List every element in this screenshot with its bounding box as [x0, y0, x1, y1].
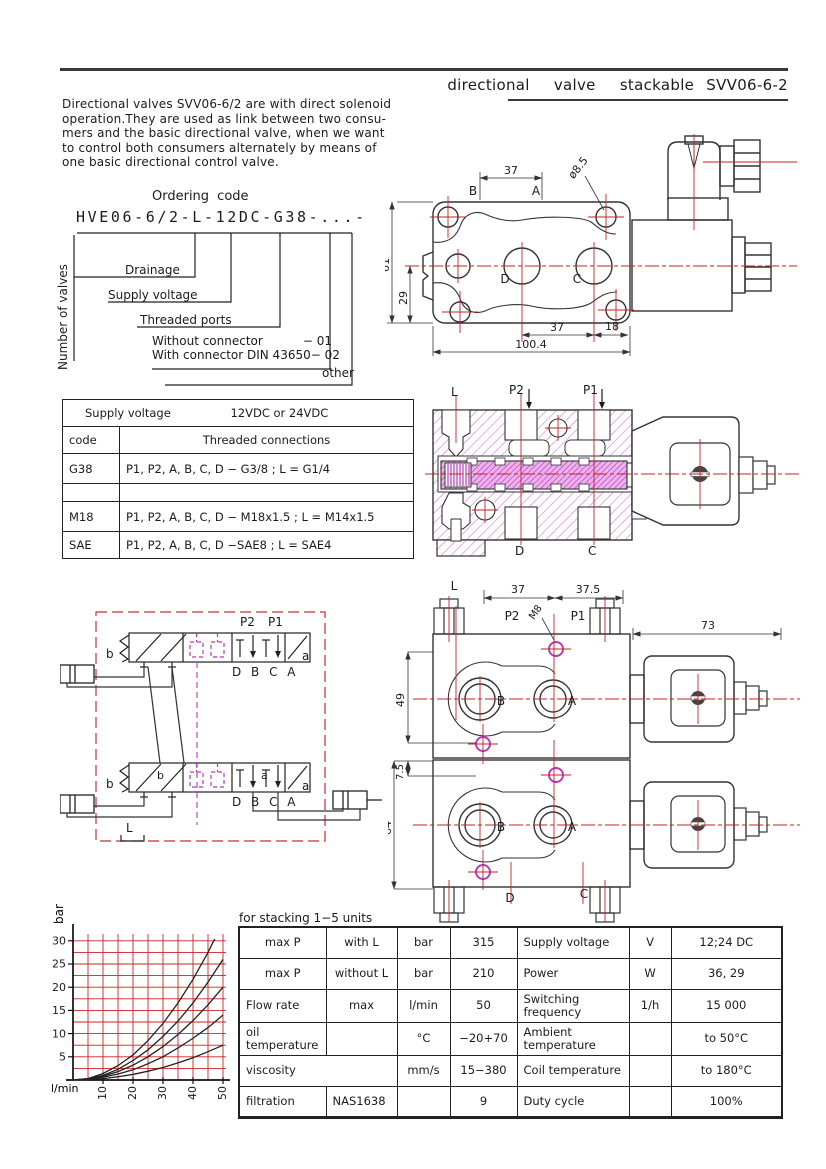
other-label: other — [322, 366, 354, 380]
spec-cell: mm/s — [397, 1055, 450, 1086]
a-inner-label: a — [261, 769, 268, 782]
drain-bracket — [121, 835, 144, 841]
intro-line: to control both consumers alternately by… — [62, 141, 391, 156]
spec-cell: 15−380 — [450, 1055, 517, 1086]
dim-64: 64 — [388, 821, 394, 835]
dim-29: 29 — [397, 291, 410, 305]
spec-cell: W — [629, 958, 671, 989]
without-connector-row: Without connector − 01 — [152, 334, 332, 348]
code-header-cell: code — [63, 427, 120, 454]
spec-cell: NAS1638 — [326, 1086, 397, 1117]
dim-37-bottom: 37 — [550, 321, 564, 334]
spec-cell: 100% — [671, 1086, 782, 1117]
c-label: C — [580, 887, 588, 901]
b-label: b — [106, 647, 114, 661]
spec-cell: Flow rate — [239, 989, 326, 1022]
p2-label: P2 — [505, 609, 520, 623]
table-row: Supply voltage 12VDC or 24VDC — [63, 400, 414, 427]
supply-voltage-value: 12VDC or 24VDC — [230, 406, 328, 420]
valve-symbol-2 — [120, 763, 310, 797]
hydraulic-schematic: P2 P1 b a D B C A b a b a D B C A L — [60, 595, 384, 857]
threaded-connections-table: Supply voltage 12VDC or 24VDC code Threa… — [62, 399, 414, 559]
centerlines — [405, 134, 797, 342]
valve-body-outline — [423, 202, 630, 323]
b-label: B — [497, 694, 505, 708]
spec-cell: bar — [397, 958, 450, 989]
port-d-label: D — [500, 272, 509, 286]
dim-dia-8-5: ø8.5 — [566, 154, 591, 181]
schematic-labels: P2 P1 b a D B C A b a b a D B C A L — [106, 615, 309, 835]
dim-18: 18 — [605, 320, 619, 333]
spec-cell — [629, 1055, 671, 1086]
code-cell: G38 — [63, 454, 120, 484]
a-label: a — [302, 779, 309, 793]
solenoid-outline — [632, 198, 771, 311]
drainage-label: Drainage — [125, 263, 180, 277]
spec-cell: filtration — [239, 1086, 326, 1117]
ytick: 20 — [52, 981, 66, 994]
l-label: L — [451, 579, 458, 593]
spring-symbol — [120, 765, 129, 792]
stack-bodies — [433, 634, 630, 887]
valve-symbol-1 — [120, 633, 310, 667]
dim-37-5: 37.5 — [576, 583, 601, 596]
with-connector-label: With connector DIN 43650 — [152, 348, 311, 362]
title-underline — [508, 99, 788, 101]
port-a-label: A — [532, 184, 541, 198]
ytick: 25 — [52, 958, 66, 971]
spec-cell: °C — [397, 1022, 450, 1055]
spec-cell: 9 — [450, 1086, 517, 1117]
supply-voltage-header: Supply voltage — [85, 406, 171, 420]
intro-line: operation.They are used as link between … — [62, 112, 391, 127]
detent-dashed — [190, 633, 224, 657]
chart-grid — [73, 934, 226, 1080]
with-connector-row: With connector DIN 43650 − 02 — [152, 348, 332, 362]
spec-cell: with L — [326, 927, 397, 958]
stack-dimensions — [394, 590, 781, 889]
section-solenoid — [632, 417, 775, 525]
spec-cell: l/min — [397, 989, 450, 1022]
with-connector-code: − 02 — [311, 348, 340, 362]
detent-dashed — [190, 763, 224, 787]
spec-cell: oil temperature — [239, 1022, 326, 1055]
spec-cell: max P — [239, 958, 326, 989]
port-p1-label: P1 — [583, 383, 598, 397]
spec-cell: max P — [239, 927, 326, 958]
top-rule — [60, 68, 788, 71]
chart-y-labels: 5 10 15 20 25 30 — [52, 935, 66, 1064]
spec-cell: bar — [397, 927, 450, 958]
spec-cell: V — [629, 927, 671, 958]
spec-cell: to 180°C — [671, 1055, 782, 1086]
spec-cell: 12;24 DC — [671, 927, 782, 958]
dim-37-top: 37 — [504, 164, 518, 177]
code-cell — [63, 484, 120, 502]
intro-line: Directional valves SVV06-6/2 are with di… — [62, 97, 391, 112]
ytick: 30 — [52, 935, 66, 948]
number-of-valves-label: Number of valves — [56, 236, 70, 370]
spec-cell: Switching frequency — [517, 989, 629, 1022]
l-label: L — [126, 821, 133, 835]
spec-cell — [629, 1022, 671, 1055]
intro-paragraph: Directional valves SVV06-6/2 are with di… — [62, 97, 391, 170]
spec-table-caption: for stacking 1−5 units — [239, 911, 372, 925]
dim-100-4: 100.4 — [515, 338, 547, 351]
spec-cell: to 50°C — [671, 1022, 782, 1055]
m8-label: M8 — [527, 603, 545, 622]
spec-cell — [397, 1086, 450, 1117]
p1-label: P1 — [268, 615, 283, 629]
drawing-valve-front-view: 37 ø8.5 B A 61 29 D C 37 18 100.4 — [385, 130, 805, 368]
code-cell: M18 — [63, 502, 120, 532]
x-axis-label: l/min — [51, 1082, 79, 1095]
p1-label: P1 — [571, 609, 586, 623]
page-title: directional valve stackable SVV06-6-2 — [388, 76, 788, 94]
xtick: 40 — [186, 1086, 199, 1100]
y-axis-label: bar — [52, 904, 66, 924]
spec-cell: Power — [517, 958, 629, 989]
connections-cell: P1, P2, A, B, C, D −SAE8 ; L = SAE4 — [120, 532, 414, 559]
spec-cell: max — [326, 989, 397, 1022]
chart-ticks — [68, 941, 223, 1084]
connections-cell: P1, P2, A, B, C, D − G3/8 ; L = G1/4 — [120, 454, 414, 484]
spec-cell: −20+70 — [450, 1022, 517, 1055]
din-connector-outline — [668, 136, 760, 200]
port-b-label: B — [469, 184, 477, 198]
pressure-drop-chart: 5 10 15 20 25 30 10 20 30 40 50 bar l/mi… — [50, 894, 240, 1119]
xtick: 50 — [216, 1086, 229, 1100]
spec-cell: 315 — [450, 927, 517, 958]
port-c-label: C — [573, 272, 581, 286]
ytick: 15 — [52, 1004, 66, 1017]
xtick: 10 — [96, 1086, 109, 1100]
xtick: 20 — [126, 1086, 139, 1100]
spec-table: max P with L bar 315 Supply voltage V 12… — [238, 926, 783, 1119]
code-cell: SAE — [63, 532, 120, 559]
spec-cell — [326, 1022, 397, 1055]
threaded-ports-label: Threaded ports — [140, 313, 232, 327]
section-body — [433, 410, 651, 556]
port-p2-label: P2 — [509, 383, 524, 397]
stack-solenoids — [630, 656, 767, 868]
b-label: b — [106, 777, 114, 791]
spec-cell: 36, 29 — [671, 958, 782, 989]
spec-cell — [629, 1086, 671, 1117]
spec-cell: 50 — [450, 989, 517, 1022]
port-d-label: D — [515, 544, 524, 558]
intro-line: mers and the basic directional valve, wh… — [62, 126, 391, 141]
dim-7-5: 7.5 — [395, 764, 406, 780]
b-label: B — [497, 820, 505, 834]
connections-cell — [120, 484, 414, 502]
port-c-label: C — [588, 544, 596, 558]
spec-cell: 15 000 — [671, 989, 782, 1022]
spring-coils — [445, 463, 471, 487]
dim-49: 49 — [394, 693, 407, 707]
port-l-label: L — [451, 385, 458, 399]
spec-cell: 210 — [450, 958, 517, 989]
p2-label: P2 — [240, 615, 255, 629]
spec-cell: viscosity — [239, 1055, 397, 1086]
dim-61: 61 — [385, 258, 392, 272]
drawing-labels: 37 ø8.5 B A 61 29 D C 37 18 100.4 — [385, 154, 619, 351]
connections-cell: P1, P2, A, B, C, D − M18x1.5 ; L = M14x1… — [120, 502, 414, 532]
ytick: 5 — [59, 1051, 66, 1064]
drawing-valve-cross-section: L P2 P1 D C — [425, 383, 803, 571]
spring-symbol — [120, 635, 129, 662]
supply-voltage-label: Supply voltage — [108, 288, 198, 302]
spec-cell: Supply voltage — [517, 927, 629, 958]
ytick: 10 — [52, 1027, 66, 1040]
without-connector-label: Without connector — [152, 334, 263, 348]
xtick: 30 — [156, 1086, 169, 1100]
a-label: a — [302, 649, 309, 663]
dim-37: 37 — [511, 583, 525, 596]
spec-cell: Coil temperature — [517, 1055, 629, 1086]
ports-dbca-label: D B C A — [232, 795, 299, 809]
spec-cell: 1/h — [629, 989, 671, 1022]
stack-centerlines — [413, 596, 800, 922]
datasheet-page: directional valve stackable SVV06-6-2 Di… — [0, 0, 826, 1169]
spec-cell: Duty cycle — [517, 1086, 629, 1117]
without-connector-code: − 01 — [303, 334, 332, 348]
connections-header-cell: Threaded connections — [120, 427, 414, 454]
drawing-stacked-valves: L 37 37.5 P2 P1 M8 73 49 7.5 64 B A B A … — [388, 572, 812, 924]
ports-dbca-label: D B C A — [232, 665, 299, 679]
dim-73: 73 — [701, 619, 715, 632]
schematic-lines — [67, 667, 360, 820]
d-label: D — [505, 891, 514, 905]
b-inner-label: b — [157, 769, 164, 782]
intro-line: one basic directional control valve. — [62, 155, 391, 170]
chart-x-labels: 10 20 30 40 50 — [96, 1086, 229, 1100]
spec-cell: Ambient temperature — [517, 1022, 629, 1055]
spec-cell: without L — [326, 958, 397, 989]
a-label: A — [568, 820, 577, 834]
a-label: A — [568, 694, 577, 708]
